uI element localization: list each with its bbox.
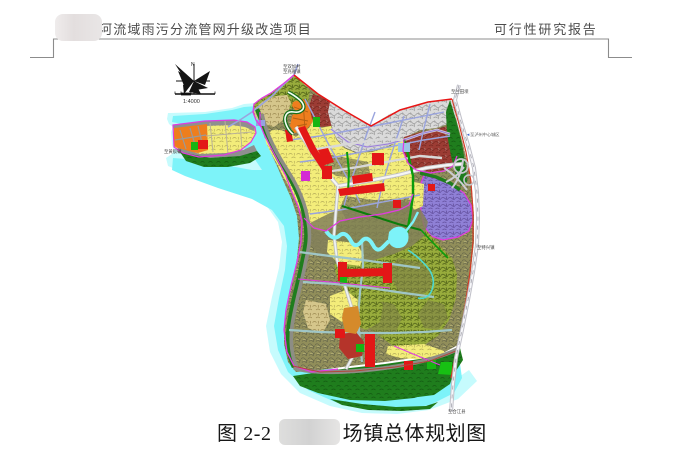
svg-text:至兆雅镇: 至兆雅镇 bbox=[283, 68, 301, 75]
svg-text:至黄舣镇: 至黄舣镇 bbox=[164, 148, 182, 155]
svg-text:N: N bbox=[191, 62, 195, 68]
svg-text:◄至泸州中心城区: ◄至泸州中心城区 bbox=[466, 131, 499, 138]
svg-text:至合江县: 至合江县 bbox=[448, 408, 466, 415]
svg-text:1:4000: 1:4000 bbox=[183, 99, 200, 105]
svg-text:至特兴镇: 至特兴镇 bbox=[477, 244, 495, 251]
svg-text:至兰田坝: 至兰田坝 bbox=[451, 88, 469, 95]
